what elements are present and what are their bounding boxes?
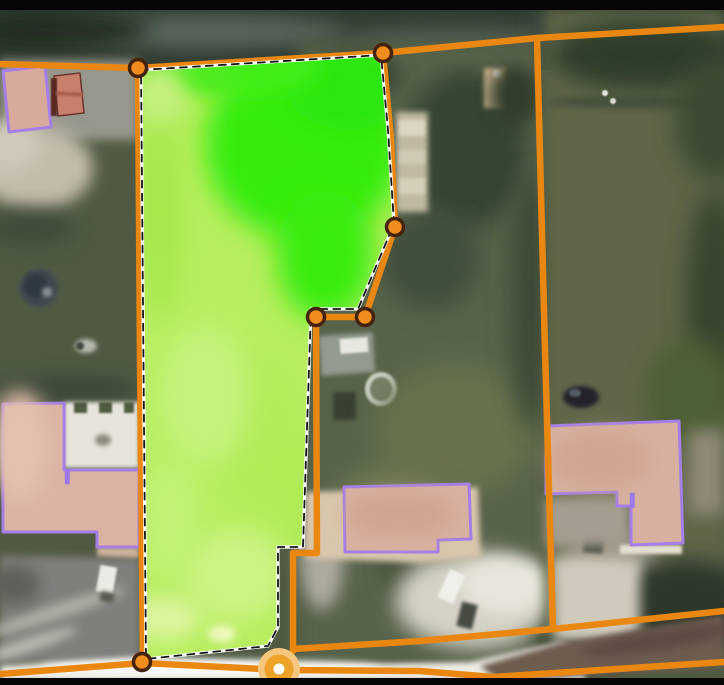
ndvi-pale-6 [140,460,200,580]
parcel-vertex-handle[interactable] [132,652,151,671]
ndvi-pale-2 [185,530,285,620]
junk-stack-low [399,178,425,194]
courtyard-notch-1 [74,402,87,413]
map-view[interactable] [0,0,724,685]
building-right-shade [550,432,650,488]
car-black-highlight [569,389,581,397]
building-topleft [3,66,51,132]
pavement-far-right [688,430,724,515]
building-center-shade [345,493,455,537]
parcel-vertex-handle[interactable] [306,307,325,326]
parcel-vertex-handle[interactable] [128,58,147,77]
letterbox-top [0,0,724,10]
ndvi-medium-2 [138,100,182,320]
letterbox-bottom [0,678,724,685]
junk-stack-top [399,120,425,136]
dark-shed [333,392,356,420]
building-right-annex [631,494,634,507]
ndvi-pale-1 [160,325,250,465]
roof-terracotta-edge [51,78,57,116]
map-canvas[interactable] [0,0,724,685]
building-left-annex [66,470,69,483]
parcel-vertex-handle[interactable] [385,217,404,236]
building-right-whitewall [620,545,682,554]
parcel-vertex-handle[interactable] [373,43,392,62]
center-dark-patch [490,65,540,125]
courtyard-object [95,434,111,446]
courtyard-notch-2 [99,402,112,413]
junk-stack-mid [399,150,425,164]
parcel-vertex-handle[interactable] [355,307,374,326]
courtyard-notch-3 [124,402,134,413]
car-black-right [563,386,599,408]
ndvi-bright-4 [277,190,373,320]
gray-shed-white [340,337,369,354]
ndvi-pale-4 [208,625,236,643]
